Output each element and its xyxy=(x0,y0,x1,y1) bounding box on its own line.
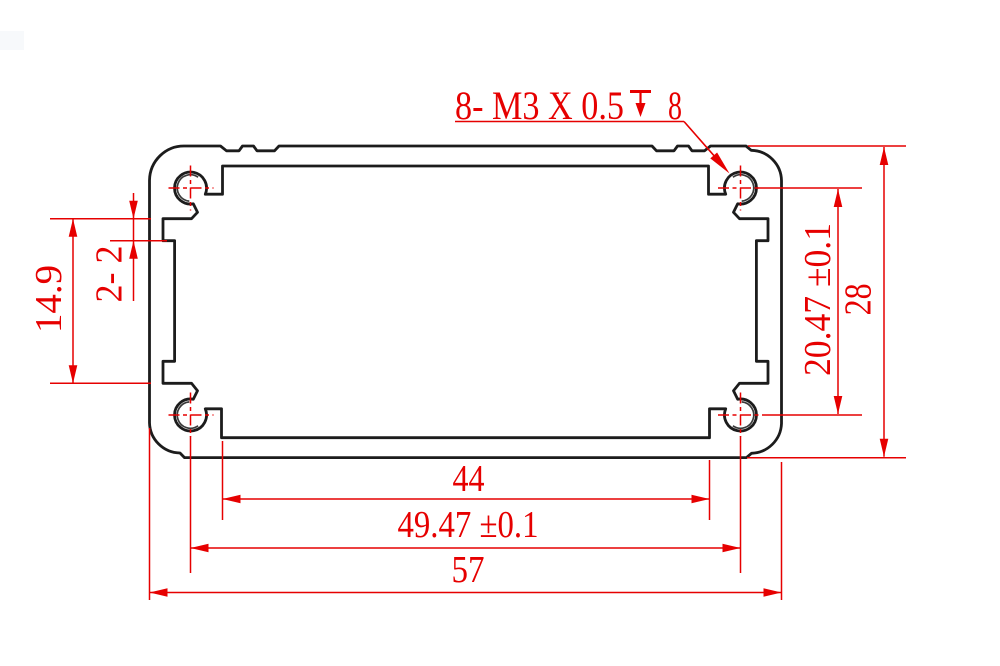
svg-text:20.47 ±0.1: 20.47 ±0.1 xyxy=(797,223,839,376)
svg-text:44: 44 xyxy=(453,458,485,500)
svg-text:2- 2: 2- 2 xyxy=(89,246,131,303)
svg-text:14.9: 14.9 xyxy=(28,265,70,333)
svg-text:57: 57 xyxy=(452,549,485,591)
svg-text:49.47 ±0.1: 49.47 ±0.1 xyxy=(398,504,539,546)
svg-text:28: 28 xyxy=(838,283,880,315)
